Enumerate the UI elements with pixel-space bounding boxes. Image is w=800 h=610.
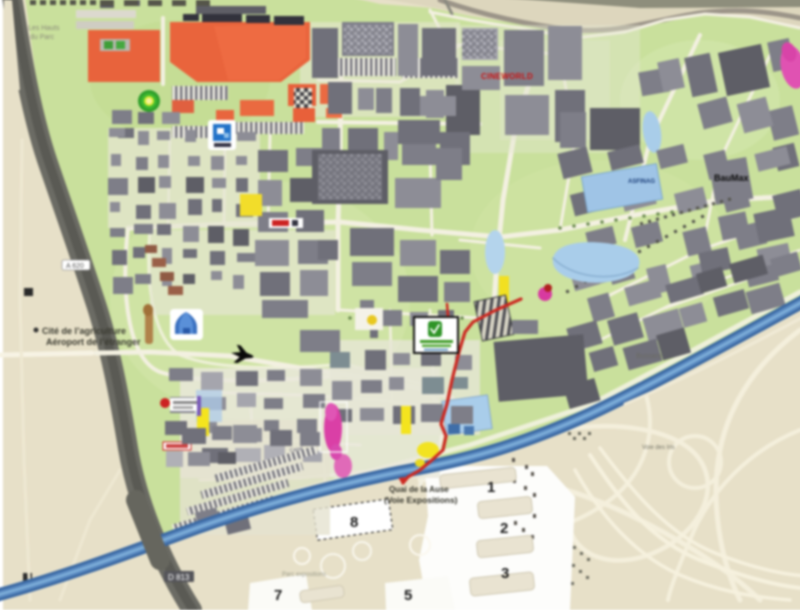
svg-text:CINEWORLD: CINEWORLD xyxy=(481,72,533,81)
svg-text:du Parc: du Parc xyxy=(30,34,55,41)
svg-text:3: 3 xyxy=(501,565,509,582)
svg-text:2: 2 xyxy=(500,520,508,537)
svg-text:BauMax: BauMax xyxy=(714,173,749,183)
svg-text:Aéroport de l’étranger: Aéroport de l’étranger xyxy=(46,337,141,347)
svg-text:1: 1 xyxy=(487,479,495,496)
svg-text:5: 5 xyxy=(404,587,412,604)
svg-text:Les Hauts: Les Hauts xyxy=(28,25,60,32)
svg-text:A 620: A 620 xyxy=(66,263,84,270)
svg-text:Parc expositions: Parc expositions xyxy=(282,572,326,578)
svg-text:D 813: D 813 xyxy=(168,573,190,582)
svg-text:ASFINAG: ASFINAG xyxy=(628,179,655,185)
svg-text:Voie des Iris: Voie des Iris xyxy=(642,445,675,451)
svg-text:Bussara: Bussara xyxy=(636,353,662,360)
svg-text:7: 7 xyxy=(274,587,282,604)
svg-text:Cité de l’agriculture: Cité de l’agriculture xyxy=(42,326,126,336)
svg-text:Quai de la Ause: Quai de la Ause xyxy=(389,485,449,494)
svg-text:8: 8 xyxy=(350,514,358,531)
svg-text:(Voie Expositions): (Voie Expositions) xyxy=(384,495,458,505)
